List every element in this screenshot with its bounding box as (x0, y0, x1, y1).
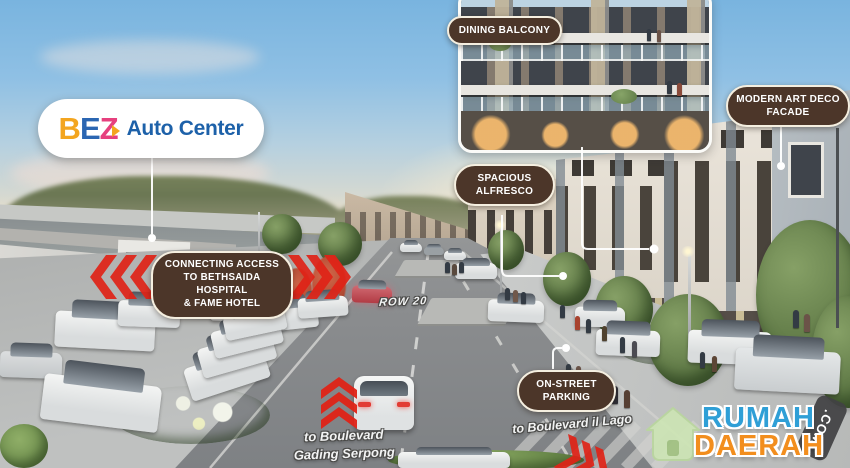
pedestrian (712, 356, 717, 372)
callout-text: MODERN ART DECO (734, 93, 842, 106)
pedestrian (575, 316, 580, 330)
bush (0, 424, 48, 468)
pedestrian (505, 288, 510, 300)
pedestrian (804, 314, 810, 332)
bez-auto-center-logo: B E Z Auto Center (38, 99, 264, 158)
car (488, 299, 545, 323)
logo-letter-b: B (59, 111, 80, 147)
street-light (681, 246, 695, 257)
pedestrian (459, 262, 464, 273)
inset-person (667, 81, 672, 94)
street-light-pole (500, 226, 502, 298)
car (400, 243, 422, 252)
suv-rear (354, 376, 414, 430)
callout-on-street-parking: ON-STREET PARKING (517, 370, 616, 412)
tree (262, 214, 302, 254)
pedestrian (452, 264, 457, 275)
inset-person (677, 83, 682, 96)
suv-taillight (397, 402, 410, 407)
callout-text: FACADE (734, 106, 842, 119)
pedestrian (445, 262, 450, 273)
callout-text: ALFRESCO (462, 185, 547, 198)
pedestrian (513, 290, 518, 302)
cloud (40, 40, 260, 74)
pedestrian (793, 310, 799, 328)
logo-name: Auto Center (127, 117, 244, 141)
inset-person (657, 30, 661, 42)
callout-text: & FAME HOTEL (159, 298, 285, 311)
pedestrian (620, 337, 625, 353)
marketing-render-scene: ROW 20 to Boulevard Gading Serpong to Bo… (0, 0, 850, 468)
car (297, 295, 348, 318)
callout-modern-art-deco-facade: MODERN ART DECO FACADE (726, 85, 850, 127)
pedestrian (560, 305, 565, 318)
inset-plant (611, 89, 637, 104)
street-light (494, 220, 506, 230)
callout-text: SPACIOUS (462, 172, 547, 185)
street-light-pole (836, 128, 839, 328)
road-label-row: ROW 20 (378, 295, 427, 309)
callout-text: TO BETHSAIDA HOSPITAL (159, 272, 285, 298)
callout-text: DINING BALCONY (455, 24, 554, 37)
callout-text: CONNECTING ACCESS (159, 259, 285, 272)
callout-connecting-access: CONNECTING ACCESS TO BETHSAIDA HOSPITAL … (151, 251, 293, 319)
logo-letter-e: E (80, 111, 100, 147)
callout-text: ON-STREET (525, 378, 608, 391)
inset-restaurant-lights (461, 111, 709, 150)
callout-dining-balcony: DINING BALCONY (447, 16, 562, 45)
pedestrian (521, 292, 526, 304)
callout-text: PARKING (525, 391, 608, 404)
tree (543, 252, 591, 306)
watermark-word-daerah: DAERAH (694, 430, 824, 463)
pedestrian (586, 319, 591, 333)
inset-person (647, 29, 651, 41)
pedestrian (602, 326, 607, 341)
callout-spacious-alfresco: SPACIOUS ALFRESCO (454, 164, 555, 206)
car (734, 347, 841, 394)
corner-window (788, 142, 824, 198)
pedestrian (632, 341, 637, 357)
pedestrian (624, 390, 630, 408)
suv-taillight (358, 402, 371, 407)
road-median (394, 260, 460, 278)
logo-triangle-icon (112, 125, 120, 137)
suv-rear-window (360, 381, 408, 396)
car (398, 452, 510, 468)
car (424, 247, 444, 255)
road-label-gading: to Boulevard Gading Serpong (285, 425, 402, 464)
pedestrian (700, 352, 705, 368)
